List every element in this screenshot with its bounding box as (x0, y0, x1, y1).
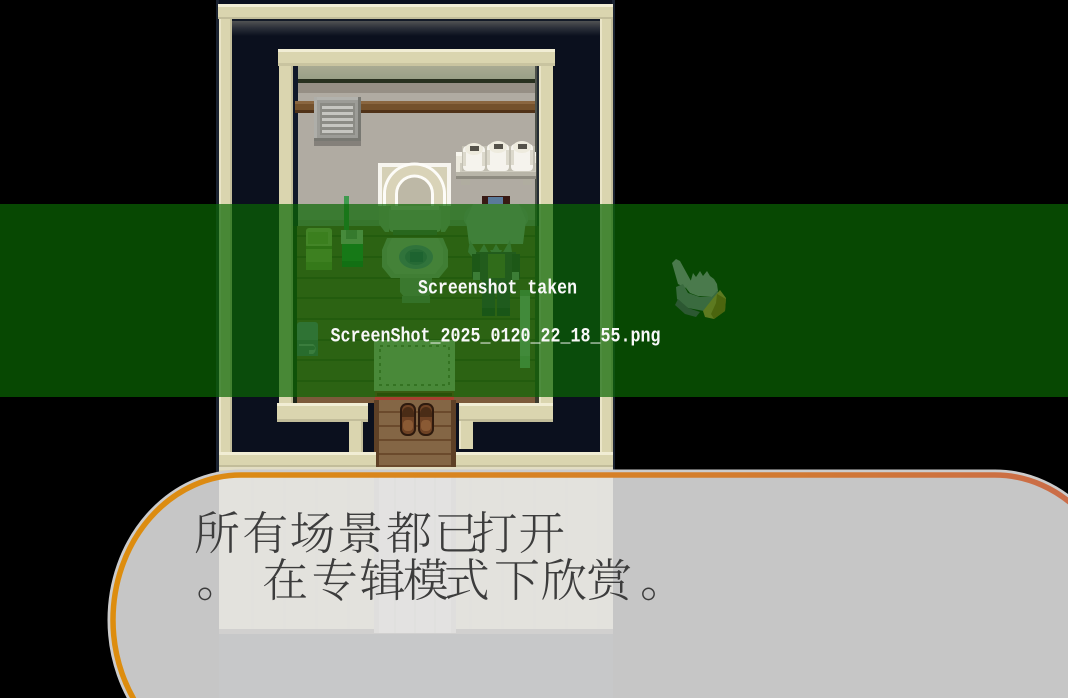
svg-text:ScreenShot_2025_0120_22_18_55.: ScreenShot_2025_0120_22_18_55.png (331, 326, 661, 349)
svg-text:Screenshot taken: Screenshot taken (418, 278, 577, 301)
